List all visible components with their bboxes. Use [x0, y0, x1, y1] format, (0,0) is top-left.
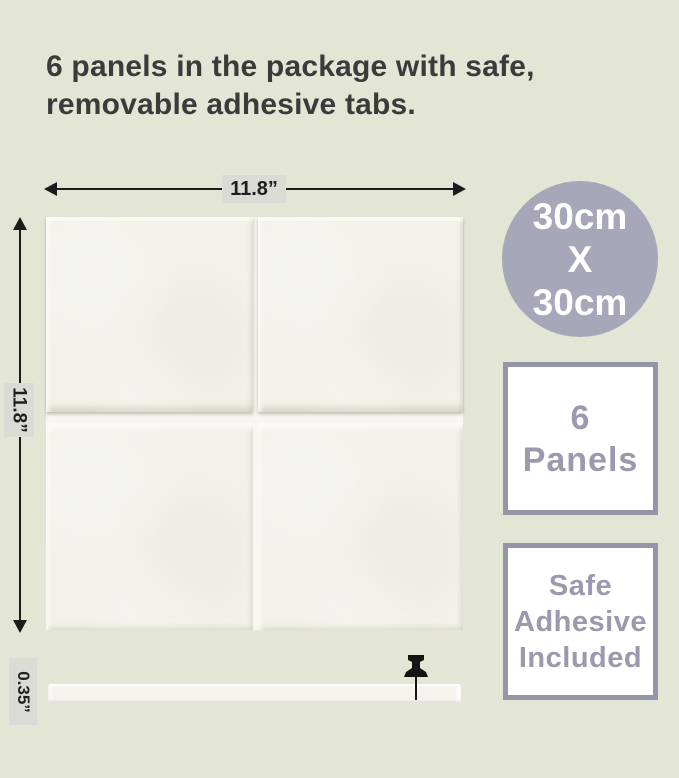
arrowhead-down-icon [13, 620, 27, 633]
height-label: 11.8” [4, 383, 34, 437]
adhesive-badge-line-1: Safe [549, 568, 612, 604]
headline-line-2: removable adhesive tabs. [46, 86, 606, 124]
arrowhead-left-icon [44, 182, 57, 196]
panel-count-word: Panels [523, 439, 639, 481]
width-label: 11.8” [222, 175, 286, 203]
felt-panel-bottom-right [258, 423, 463, 630]
push-pin-icon [400, 653, 432, 705]
size-badge: 30cm X 30cm [502, 181, 658, 337]
headline: 6 panels in the package with safe, remov… [46, 48, 606, 124]
adhesive-badge-line-2: Adhesive [514, 604, 647, 640]
panel-count-number: 6 [571, 397, 591, 439]
size-badge-line-1: 30cm [533, 195, 628, 238]
thickness-label: 0.35” [9, 658, 37, 725]
felt-panel-top-left [46, 217, 253, 412]
headline-line-1: 6 panels in the package with safe, [46, 48, 606, 86]
product-infographic: 6 panels in the package with safe, remov… [0, 0, 679, 778]
panel-photo [46, 217, 463, 630]
adhesive-badge: Safe Adhesive Included [503, 543, 658, 700]
arrowhead-right-icon [453, 182, 466, 196]
size-badge-line-2: X [568, 238, 593, 281]
felt-panel-bottom-left [46, 423, 253, 630]
size-badge-line-3: 30cm [533, 281, 628, 324]
panel-count-badge: 6 Panels [503, 362, 658, 515]
felt-panel-top-right [258, 217, 463, 412]
arrowhead-up-icon [13, 217, 27, 230]
adhesive-badge-line-3: Included [519, 640, 642, 676]
